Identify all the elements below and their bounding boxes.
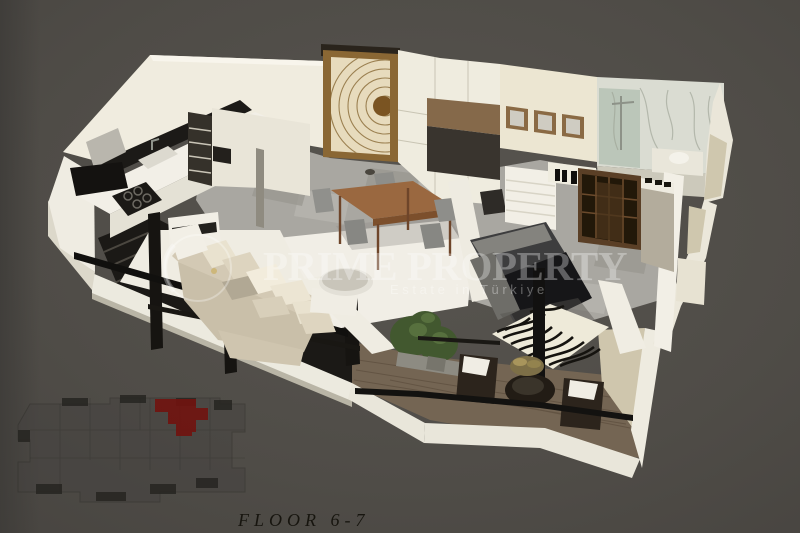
svg-text:FLOOR 6-7: FLOOR 6-7 [237, 510, 370, 530]
svg-text:Estate in Türkiye: Estate in Türkiye [390, 282, 548, 297]
